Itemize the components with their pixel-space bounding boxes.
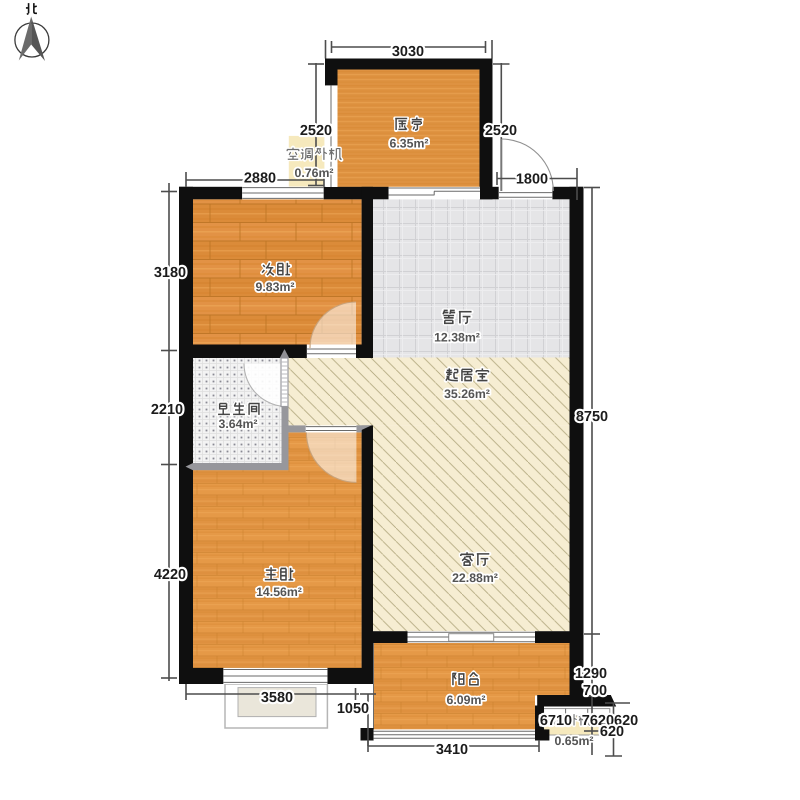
svg-text:9.83m²: 9.83m²	[256, 280, 295, 294]
svg-text:22.88m²: 22.88m²	[452, 571, 498, 585]
svg-text:12.38m²: 12.38m²	[434, 331, 480, 345]
svg-text:3180: 3180	[154, 265, 186, 281]
svg-text:1290: 1290	[575, 666, 607, 682]
svg-text:1050: 1050	[337, 701, 369, 717]
svg-text:2520: 2520	[485, 123, 517, 139]
svg-text:14.56m²: 14.56m²	[256, 585, 302, 599]
svg-text:1800: 1800	[516, 172, 548, 188]
svg-text:4220: 4220	[154, 567, 186, 583]
svg-text:3.64m²: 3.64m²	[219, 417, 258, 431]
svg-text:0.65m²: 0.65m²	[555, 734, 594, 748]
svg-text:3580: 3580	[261, 690, 293, 706]
svg-text:2210: 2210	[151, 402, 183, 418]
svg-text:35.26m²: 35.26m²	[444, 387, 490, 401]
svg-text:0.76m²: 0.76m²	[295, 166, 334, 180]
svg-text:620: 620	[600, 724, 624, 740]
svg-text:6710: 6710	[540, 713, 572, 729]
svg-text:700: 700	[583, 683, 607, 699]
svg-text:6.09m²: 6.09m²	[447, 693, 486, 707]
svg-text:6.35m²: 6.35m²	[390, 137, 429, 151]
svg-text:2880: 2880	[244, 171, 276, 187]
svg-text:3030: 3030	[392, 44, 424, 60]
svg-text:8750: 8750	[576, 409, 608, 425]
svg-text:2520: 2520	[300, 123, 332, 139]
svg-text:3410: 3410	[436, 742, 468, 758]
